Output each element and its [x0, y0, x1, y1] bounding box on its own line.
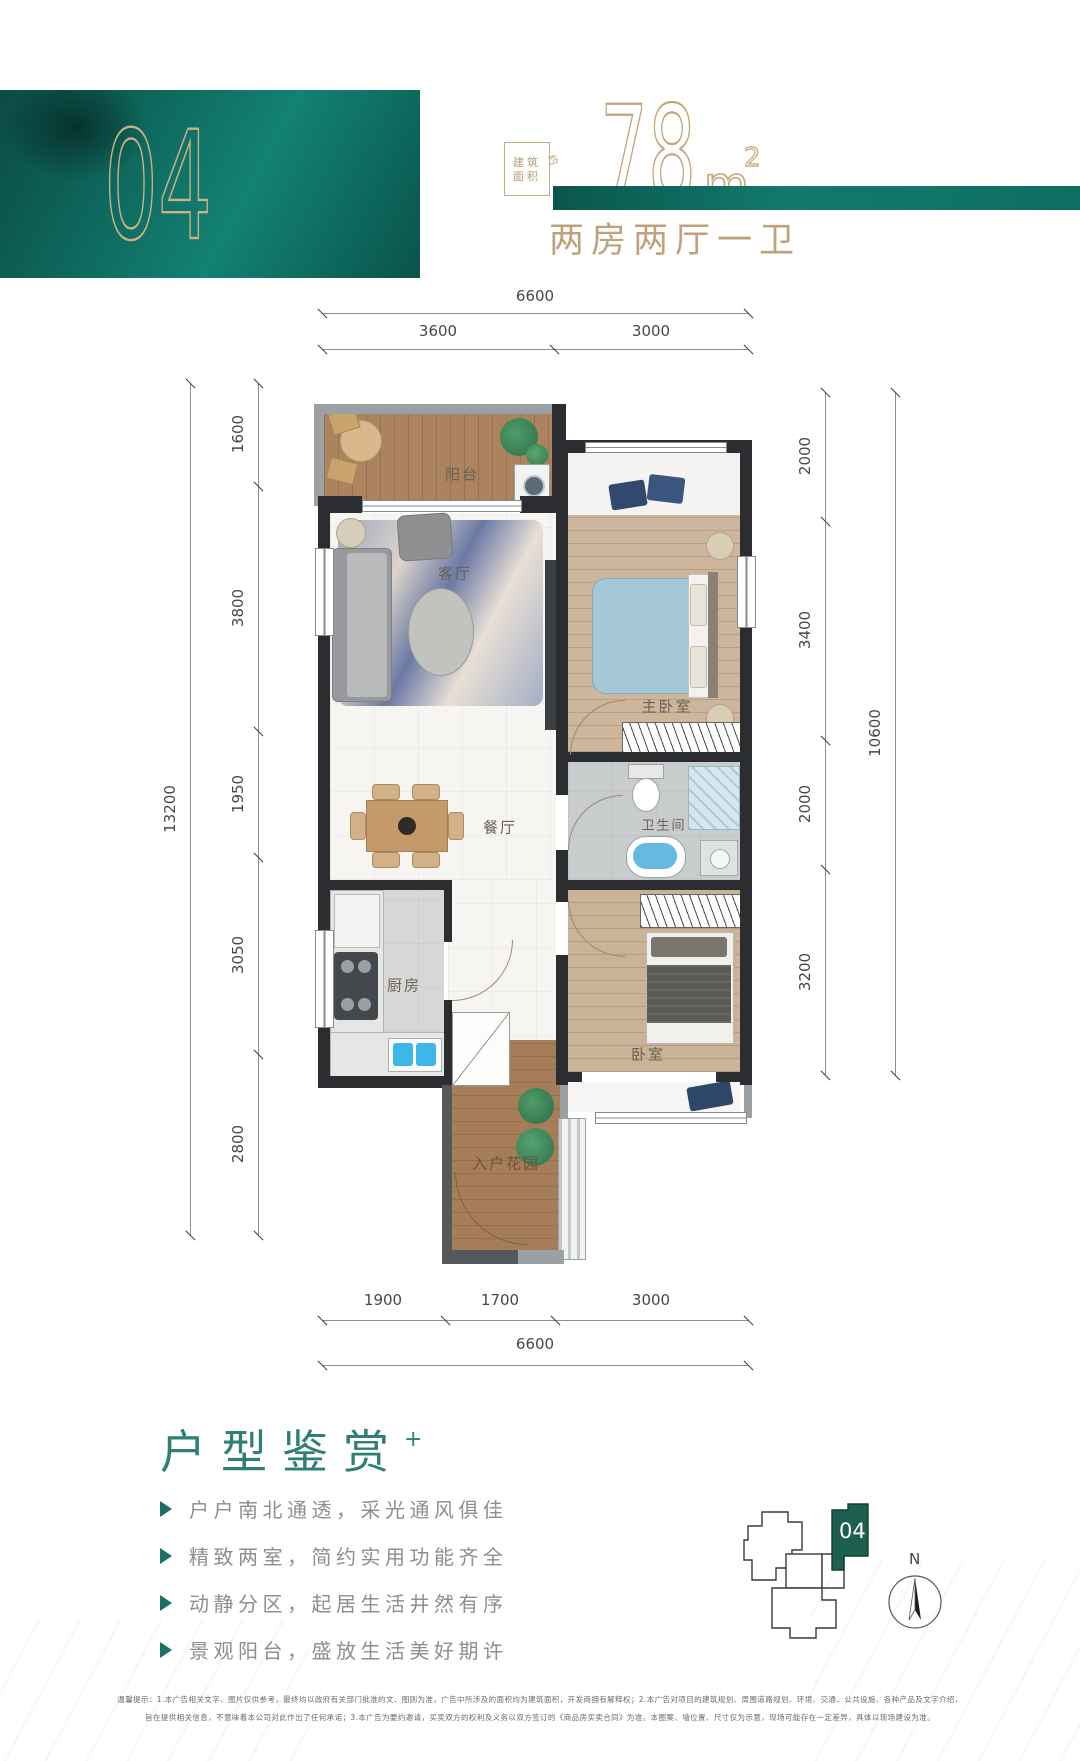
wall-hall-c	[556, 955, 568, 1085]
disclaimer-line-1: 温馨提示：1.本广告相关文字、图片仅供参考，最终均以政府有关部门批准的文、图则为…	[117, 1694, 962, 1705]
bedroom-bay-window	[595, 1112, 747, 1124]
wall-balcony-left-pier	[318, 496, 362, 513]
dim-bottom-total: 6600	[516, 1335, 554, 1353]
master-bed-duvet	[592, 578, 694, 694]
unit-number: 04	[104, 100, 212, 268]
room-label-master-bedroom: 主卧室	[641, 696, 692, 717]
triangle-bullet-icon	[160, 1501, 172, 1517]
armchair	[396, 512, 453, 562]
feature-text-2: 精致两室，简约实用功能齐全	[189, 1541, 508, 1570]
wall-hall-a	[556, 763, 568, 795]
area-exponent: 2	[744, 143, 761, 173]
wall-balcony-right	[552, 404, 566, 504]
living-window	[315, 548, 334, 636]
wall-kitchen-right-b	[444, 1000, 452, 1085]
wall-hall-b	[556, 850, 568, 902]
dining-chair-4	[412, 852, 440, 868]
hero-image: 04	[0, 90, 420, 278]
bathtub	[626, 836, 686, 878]
entry-steps	[558, 1118, 586, 1260]
wall-kitchen-bottom	[318, 1076, 452, 1088]
dim-line-left-segments	[258, 383, 259, 1235]
garden-plant-1	[518, 1088, 554, 1124]
disclaimer-line-2: 旨在提供相关信息，不意味着本公司对此作出了任何承诺；3.本广告为要约邀请，买卖双…	[145, 1712, 935, 1723]
bedroom-bed	[646, 932, 734, 1044]
bedroom-wardrobe	[640, 894, 742, 928]
wall-kitchen-top	[318, 880, 450, 890]
master-bay-window	[585, 442, 727, 453]
decor-pattern-left	[0, 1620, 310, 1761]
room-label-living: 客厅	[438, 563, 472, 584]
kitchen-window	[315, 930, 334, 1028]
room-label-entry-garden: 入户花园	[472, 1153, 540, 1174]
room-label-bathroom: 卫生间	[641, 815, 686, 834]
bathroom-sink	[700, 840, 738, 876]
dining-chair-5	[350, 812, 366, 840]
master-wardrobe	[622, 722, 742, 754]
triangle-bullet-icon	[160, 1548, 172, 1564]
master-headboard	[708, 572, 718, 698]
dim-line-top-total	[322, 313, 748, 314]
dim-left-seg-3: 1950	[229, 775, 247, 813]
dining-chair-3	[372, 852, 400, 868]
poster-page: 04 建筑 面积 约 78 m 2 两房两厅一卫	[0, 0, 1080, 1761]
master-pillow-2	[690, 646, 707, 688]
dim-line-bottom-total	[322, 1365, 748, 1366]
dim-bottom-seg-3: 3000	[632, 1291, 670, 1309]
features-title-text: 户型鉴赏	[160, 1425, 404, 1479]
room-label-dining: 餐厅	[483, 817, 517, 838]
layout-description: 两房两厅一卫	[549, 212, 801, 263]
feature-text-3: 动静分区，起居生活井然有序	[189, 1588, 508, 1617]
feature-item-2: 精致两室，简约实用功能齐全	[160, 1541, 508, 1570]
features-title-mark: +	[404, 1427, 422, 1452]
dim-right-seg-3: 2000	[796, 785, 814, 823]
features-title: 户型鉴赏+	[160, 1416, 422, 1482]
floor-lamp	[336, 518, 366, 548]
feature-item-3: 动静分区，起居生活井然有序	[160, 1588, 508, 1617]
master-window	[737, 556, 756, 628]
dim-bottom-seg-2: 1700	[481, 1291, 519, 1309]
fridge	[334, 894, 380, 948]
wall-garden-left	[442, 1085, 452, 1263]
dining-chair-6	[448, 812, 464, 840]
dining-chair-1	[372, 784, 400, 800]
sofa	[332, 548, 392, 702]
kitchen-sink	[388, 1038, 442, 1072]
balcony-door-window	[362, 500, 522, 512]
wall-kitchen-right-a	[444, 880, 452, 942]
dim-left-seg-1: 1600	[229, 415, 247, 453]
dim-right-total: 10600	[866, 709, 884, 757]
balcony-plant-2	[526, 444, 548, 466]
wall-garden-bottom	[442, 1250, 518, 1264]
dim-left-seg-2: 3800	[229, 589, 247, 627]
keyplan-unit-label: 04	[839, 1519, 866, 1543]
tv-console	[545, 560, 556, 730]
master-bay-pillow-1	[608, 479, 648, 510]
wall-bath-bedroom	[556, 880, 752, 890]
triangle-bullet-icon	[160, 1595, 172, 1611]
area-label-line1: 建筑	[513, 157, 541, 168]
dim-right-seg-1: 2000	[796, 437, 814, 475]
dining-chair-2	[412, 784, 440, 800]
dim-left-seg-5: 2800	[229, 1125, 247, 1163]
dim-left-total: 13200	[161, 785, 179, 833]
stove	[334, 952, 378, 1020]
unit-number-display: 04	[92, 98, 352, 268]
feature-item-1: 户户南北通透，采光通风俱佳	[160, 1494, 508, 1523]
dim-right-seg-2: 3400	[796, 611, 814, 649]
area-label-box: 建筑 面积	[504, 142, 550, 196]
dining-table	[366, 800, 448, 852]
decor-pattern-right	[810, 1560, 1080, 1761]
shoe-cabinet	[452, 1012, 510, 1086]
balcony-railing-left	[314, 404, 324, 506]
feature-text-1: 户户南北通透，采光通风俱佳	[189, 1494, 508, 1523]
wall-bedroom-bottom-b	[716, 1072, 752, 1082]
teal-divider-bar	[553, 186, 1080, 210]
dim-top-seg-1: 3600	[419, 322, 457, 340]
room-label-balcony: 阳台	[445, 464, 479, 485]
toilet-bowl	[632, 778, 660, 812]
coffee-table	[408, 588, 474, 676]
wall-bedroom-bottom-a	[556, 1072, 582, 1082]
dim-line-right-segments	[825, 392, 826, 1075]
dim-top-seg-2: 3000	[632, 322, 670, 340]
dim-line-left-total	[190, 383, 191, 1235]
room-label-bedroom: 卧室	[631, 1044, 665, 1065]
dim-left-seg-4: 3050	[229, 936, 247, 974]
dim-line-right-total	[895, 392, 896, 1075]
toilet-tank	[628, 764, 664, 779]
room-label-kitchen: 厨房	[387, 975, 421, 996]
shower	[688, 766, 740, 830]
dim-right-seg-4: 3200	[796, 953, 814, 991]
balcony-railing-top	[314, 404, 566, 414]
dim-bottom-seg-1: 1900	[364, 1291, 402, 1309]
wall-right	[740, 440, 752, 1085]
garden-threshold	[518, 1250, 564, 1264]
dim-line-top-segments	[322, 349, 748, 350]
bay-side-left	[560, 1082, 568, 1118]
dim-line-bottom-segments	[322, 1320, 748, 1321]
wall-living-master	[556, 500, 568, 763]
area-label-line2: 面积	[513, 171, 541, 182]
dim-top-total: 6600	[516, 287, 554, 305]
nightstand-1	[706, 532, 734, 560]
master-bay-pillow-2	[647, 474, 686, 504]
master-pillow-1	[690, 584, 707, 626]
